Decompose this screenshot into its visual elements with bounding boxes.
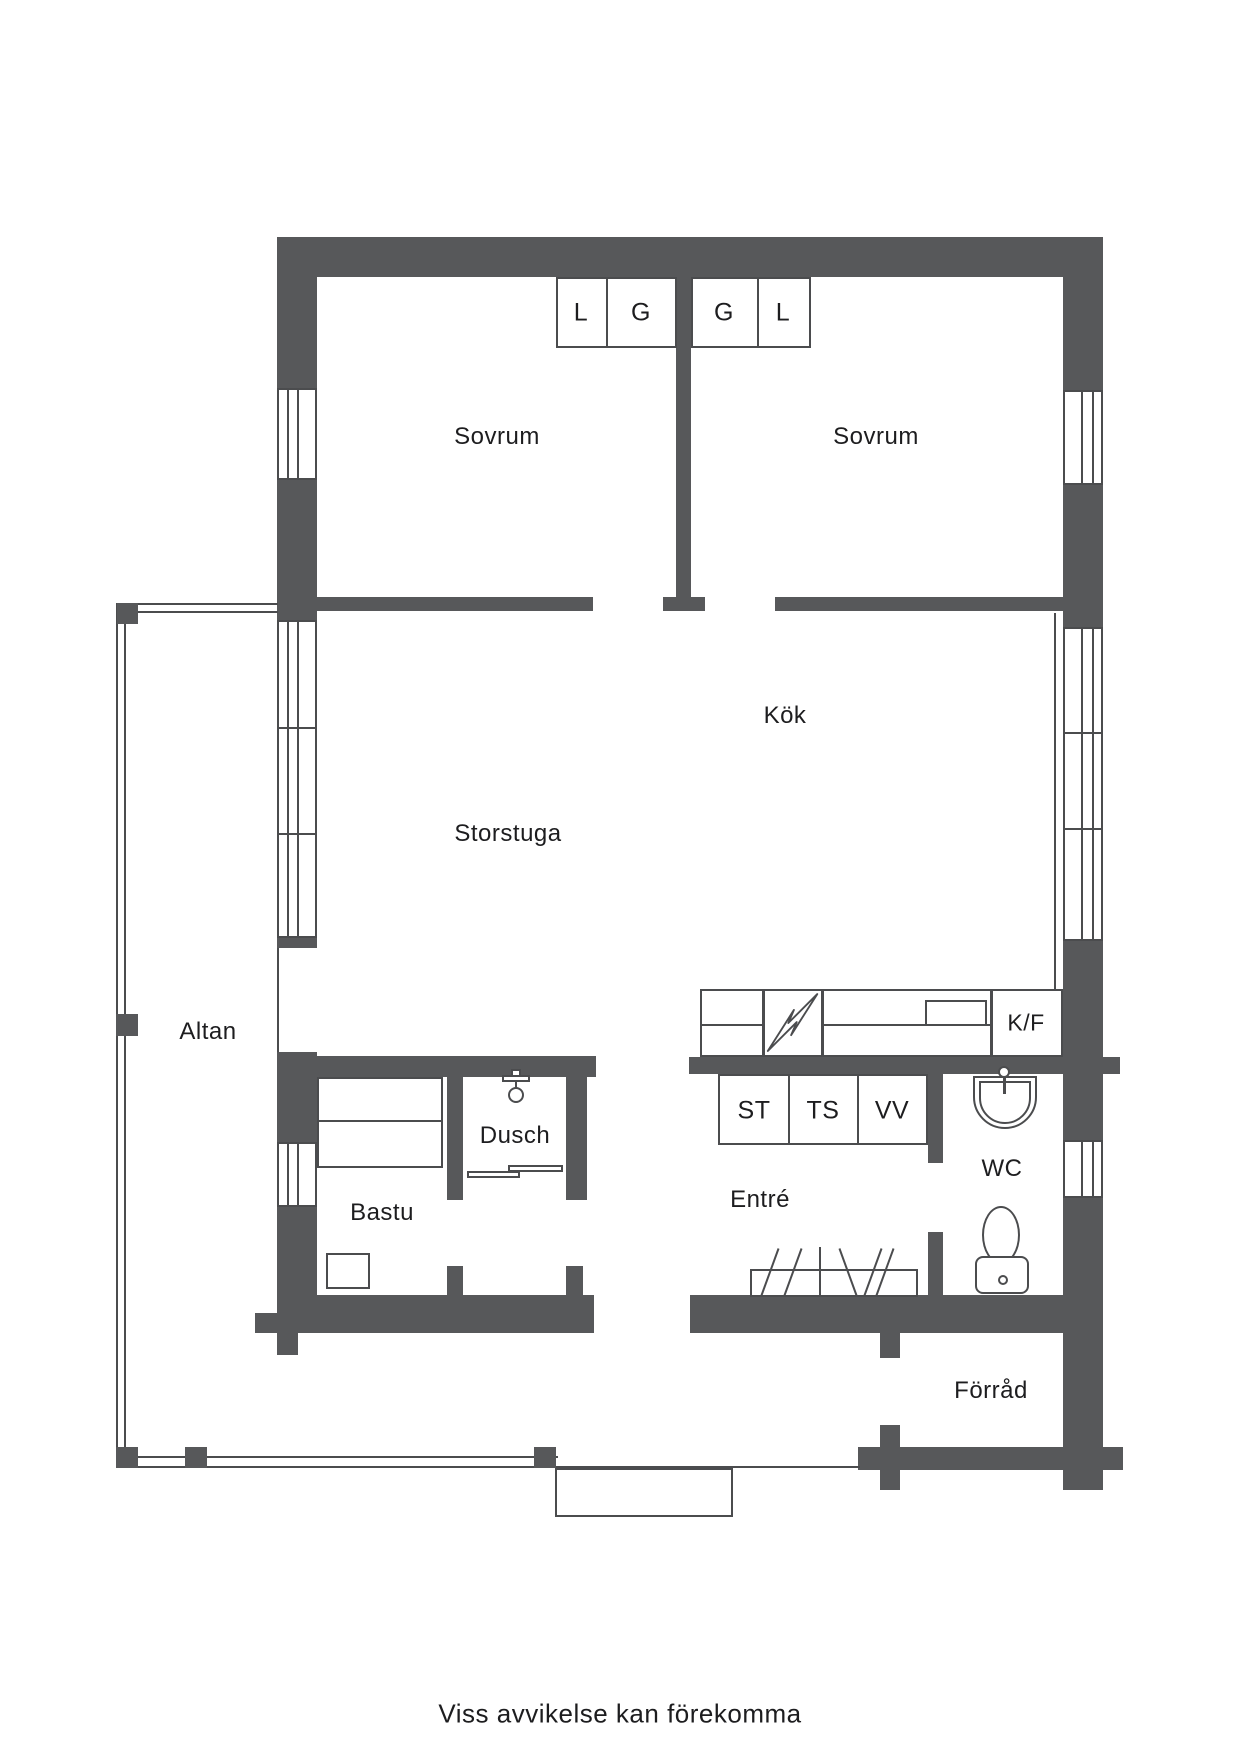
room-label-dusch: Dusch bbox=[480, 1122, 551, 1150]
room-label-altan: Altan bbox=[179, 1018, 236, 1046]
shower-head-icon bbox=[502, 1069, 530, 1105]
closet-label-vv: VV bbox=[875, 1097, 909, 1126]
shower-sliding-door bbox=[467, 1171, 520, 1178]
forrad-bottom-wall bbox=[858, 1447, 1123, 1470]
kitchen-window-sill-line bbox=[1054, 613, 1056, 989]
toilet-button bbox=[998, 1275, 1008, 1285]
left-wall-corner-joint bbox=[277, 1333, 298, 1355]
closet-label-g: G bbox=[714, 299, 734, 328]
deck-post bbox=[185, 1447, 207, 1468]
window-storstuga bbox=[277, 620, 317, 938]
sauna-bench bbox=[317, 1077, 443, 1122]
closet-label-g: G bbox=[631, 299, 651, 328]
room-label-wc: WC bbox=[982, 1155, 1023, 1183]
dusch-right-wall bbox=[566, 1077, 587, 1200]
window-wc bbox=[1063, 1140, 1103, 1198]
shower-sliding-door bbox=[508, 1165, 563, 1172]
left-wall-segment bbox=[277, 480, 317, 620]
room-label-kok: Kök bbox=[764, 702, 807, 730]
right-wall-segment bbox=[1063, 941, 1103, 1140]
bedroom-divider-wall-right bbox=[775, 597, 1063, 611]
wc-toilet bbox=[975, 1206, 1029, 1296]
faucet-icon bbox=[998, 1066, 1010, 1078]
sauna-heater bbox=[326, 1253, 370, 1289]
sauna-bench bbox=[317, 1120, 443, 1168]
dusch-left-wall-stub bbox=[447, 1266, 463, 1295]
wardrobe bbox=[750, 1269, 918, 1297]
kitchen-counter-sink bbox=[822, 989, 992, 1057]
forrad-left-wall-top bbox=[880, 1333, 900, 1358]
window-kok bbox=[1063, 627, 1103, 941]
bedroom-center-wall bbox=[676, 273, 691, 611]
kitchen-cabinet bbox=[700, 989, 764, 1057]
room-label-sovrum-right: Sovrum bbox=[833, 423, 919, 451]
window-bastu bbox=[277, 1142, 317, 1207]
closet-label-ts: TS bbox=[807, 1097, 840, 1126]
wc-divider-lower bbox=[928, 1232, 943, 1297]
room-label-entre: Entré bbox=[730, 1186, 790, 1214]
stove bbox=[763, 989, 823, 1057]
closet-label-st: ST bbox=[738, 1097, 771, 1126]
entrance-step bbox=[555, 1468, 733, 1517]
wc-divider-upper bbox=[928, 1074, 943, 1163]
deck-post bbox=[117, 603, 138, 624]
deck-post bbox=[116, 1447, 138, 1468]
window-bedroom-left bbox=[277, 388, 317, 480]
top-wall bbox=[277, 237, 1103, 277]
kitchen-entre-wall bbox=[689, 1057, 1103, 1074]
dusch-left-wall bbox=[447, 1077, 463, 1200]
left-wall-segment bbox=[277, 277, 317, 388]
dusch-section-top-wall bbox=[317, 1056, 596, 1077]
room-label-bastu: Bastu bbox=[350, 1199, 414, 1227]
lightning-bolt-icon bbox=[765, 991, 821, 1055]
bedroom-divider-wall-left bbox=[317, 597, 593, 611]
left-wall-segment bbox=[277, 938, 317, 948]
deck-bottom-edge bbox=[116, 1456, 558, 1468]
deck-post bbox=[116, 1014, 138, 1036]
right-wall-corner-joint bbox=[1103, 1057, 1120, 1074]
sink-basin bbox=[925, 1000, 987, 1026]
faucet-stem bbox=[1003, 1076, 1006, 1094]
closet-label-l: L bbox=[776, 299, 790, 328]
deck-top-edge bbox=[118, 603, 278, 613]
floor-plan: L G G L K/F ST TS VV bbox=[0, 0, 1240, 1754]
left-wall-corner-joint bbox=[255, 1313, 277, 1333]
disclaimer-text: Viss avvikelse kan förekomma bbox=[438, 1699, 801, 1730]
right-wall-segment bbox=[1063, 237, 1103, 390]
right-wall-segment bbox=[1063, 485, 1103, 627]
window-bedroom-right bbox=[1063, 390, 1103, 485]
bottom-wall-left bbox=[277, 1295, 594, 1333]
deck-post bbox=[534, 1447, 556, 1468]
dusch-right-wall-stub bbox=[566, 1266, 583, 1296]
closet-label-l: L bbox=[574, 299, 588, 328]
room-label-sovrum-left: Sovrum bbox=[454, 423, 540, 451]
deck-door-opening bbox=[277, 948, 279, 1052]
wc-sink bbox=[973, 1076, 1037, 1129]
fridge-freezer-label: K/F bbox=[1007, 1010, 1044, 1037]
left-wall-segment bbox=[277, 1052, 317, 1142]
room-label-storstuga: Storstuga bbox=[454, 820, 561, 848]
hanger-mark bbox=[819, 1247, 821, 1297]
room-label-forrad: Förråd bbox=[954, 1377, 1028, 1405]
bottom-wall-right bbox=[690, 1295, 1103, 1333]
